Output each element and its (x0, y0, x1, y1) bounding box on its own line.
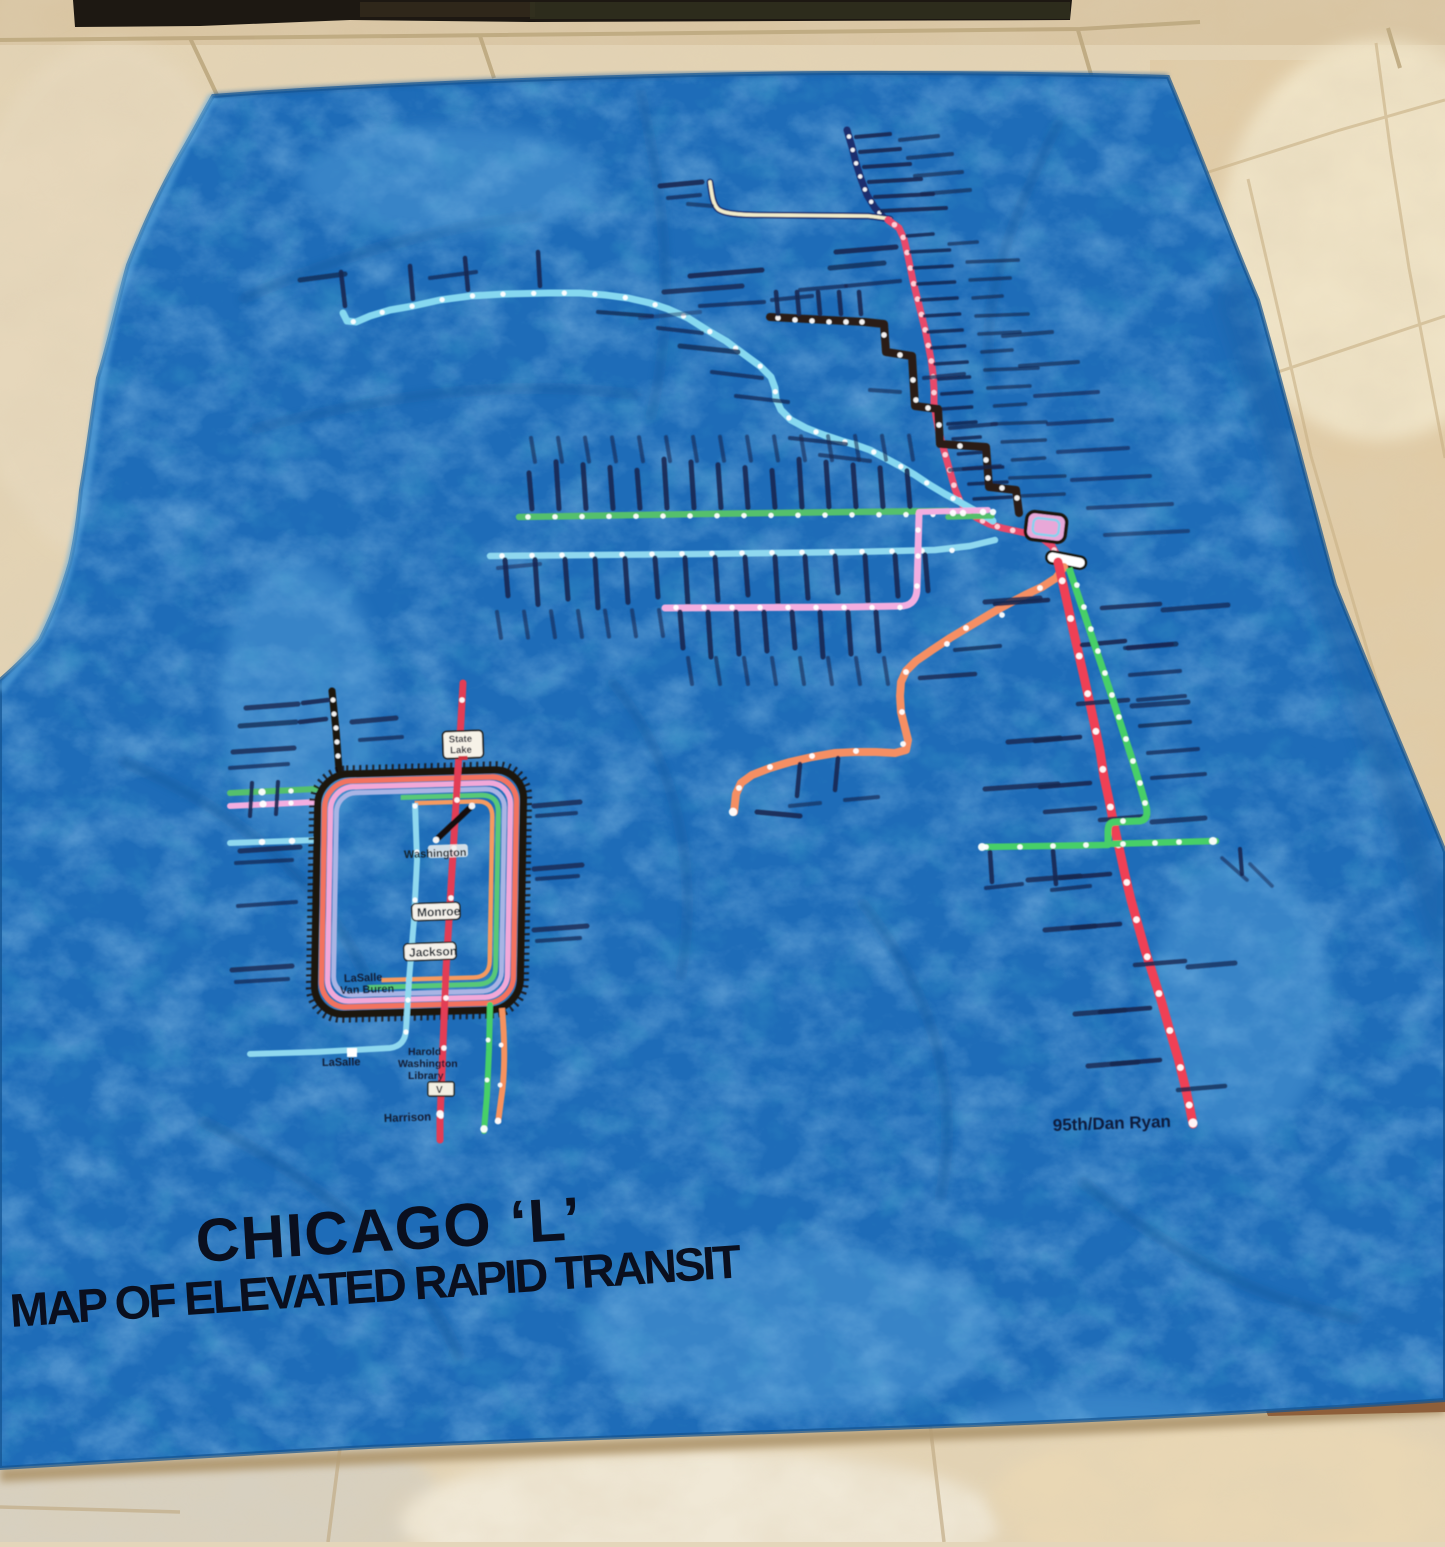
svg-text:Monroe: Monroe (417, 904, 461, 920)
svg-text:State: State (449, 734, 473, 746)
svg-text:Lake: Lake (450, 745, 472, 757)
svg-text:Van Buren: Van Buren (340, 983, 395, 997)
svg-text:Jackson: Jackson (409, 944, 457, 960)
svg-text:Washington: Washington (404, 847, 467, 861)
svg-text:Library: Library (408, 1070, 444, 1082)
svg-text:Harrison: Harrison (384, 1111, 432, 1125)
svg-text:Washington: Washington (398, 1058, 458, 1070)
svg-text:V: V (436, 1085, 443, 1096)
svg-text:LaSalle: LaSalle (322, 1056, 361, 1069)
svg-text:Harold: Harold (408, 1046, 441, 1058)
